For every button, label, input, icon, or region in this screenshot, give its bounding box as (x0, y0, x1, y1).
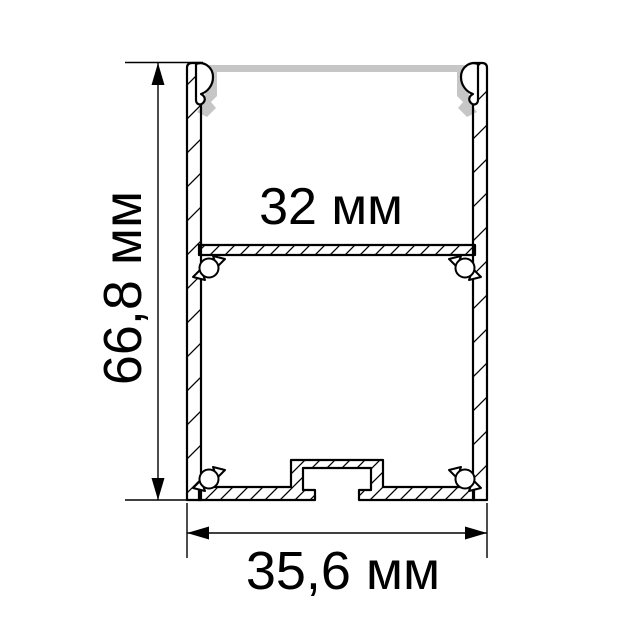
technical-drawing: 66,8 мм 32 мм 35,6 мм (0, 0, 630, 630)
dim-arrow-right-icon (465, 527, 487, 540)
profile-cross-section-canvas: 66,8 мм 32 мм 35,6 мм (0, 0, 630, 630)
dim-arrow-up-icon (152, 63, 165, 85)
dim-arrow-left-icon (187, 527, 209, 540)
profile-right-wall (473, 63, 487, 500)
profile-body (187, 63, 487, 500)
profile-base-channel (199, 460, 474, 500)
dimension-outer-width: 35,6 мм (187, 503, 487, 601)
dimension-outer-width-label: 35,6 мм (246, 541, 440, 601)
diffuser-cover (197, 65, 477, 117)
dim-arrow-down-icon (152, 478, 165, 500)
diffuser-top-plate (201, 65, 473, 72)
profile-middle-divider (199, 245, 475, 255)
dimension-inner-width-label: 32 мм (259, 178, 403, 236)
profile-left-wall (187, 63, 201, 500)
dimension-height-label: 66,8 мм (93, 191, 153, 385)
